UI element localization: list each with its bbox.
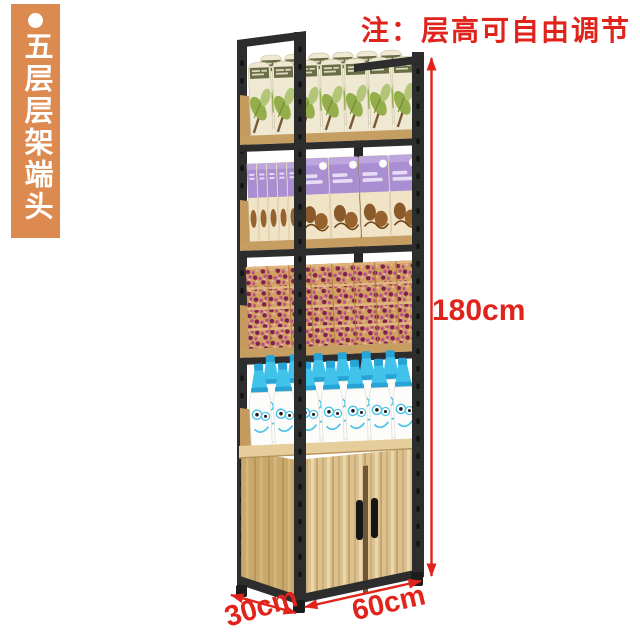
banner-label: 五层层架端头	[11, 31, 60, 223]
category-banner: 五层层架端头	[11, 4, 60, 238]
tier3-snack-boxes	[246, 260, 421, 349]
tier4-smiley-bottles	[248, 349, 417, 451]
height-dimension-label: 180cm	[432, 294, 525, 328]
note-text: 注：层高可自由调节	[361, 9, 631, 49]
product-image: 五层层架端头 注：层高可自由调节 180cm 30cm 60cm	[0, 0, 640, 640]
shelf-illustration	[0, 0, 640, 640]
cabinet-handle-right	[371, 498, 378, 538]
cabinet-door-gap	[363, 466, 368, 594]
tier2-chocolate-boxes	[247, 154, 421, 242]
banner-dot	[28, 13, 43, 28]
cabinet-handle-left	[356, 500, 363, 540]
